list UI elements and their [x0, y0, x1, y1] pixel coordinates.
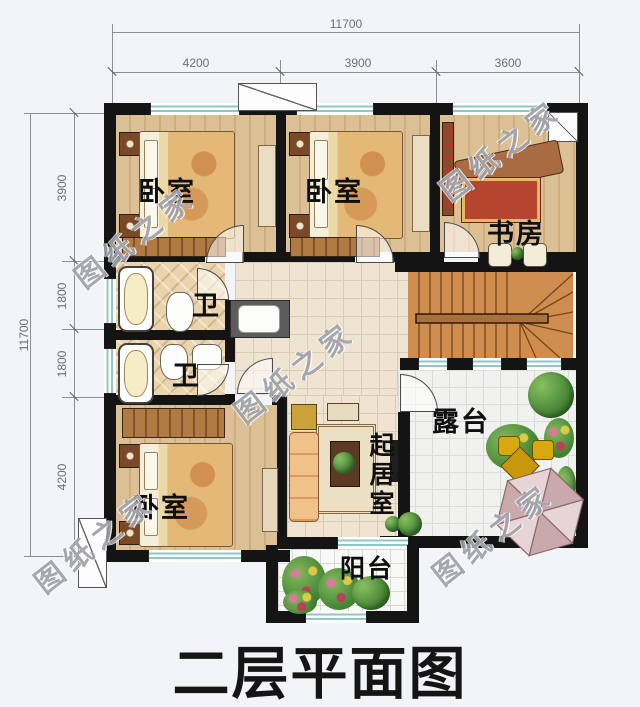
dim-extension	[24, 113, 106, 114]
plant-icon	[398, 512, 422, 536]
window-balcony-bottom	[305, 611, 367, 623]
bathtub	[118, 343, 154, 404]
window-bath1	[104, 278, 116, 324]
dresser	[258, 145, 276, 227]
nightstand	[289, 214, 311, 238]
dim-left-seg1: 3900	[55, 158, 69, 218]
bathtub	[118, 266, 154, 332]
window-stairs-3	[526, 358, 562, 370]
wall-stairs-terrace	[500, 358, 526, 370]
nightstand	[119, 132, 141, 156]
wall-stairs-terrace	[400, 358, 418, 370]
page-title: 二层平面图	[0, 628, 640, 707]
bath2-label: 卫	[172, 354, 201, 393]
wall-stairs-top	[395, 262, 576, 272]
study-label: 书房	[487, 212, 545, 251]
dim-left-seg4: 4200	[55, 447, 69, 507]
window-living-balcony	[337, 537, 409, 549]
toilet	[166, 292, 194, 332]
living-label: 起居室	[362, 432, 398, 519]
window-stairs-2	[472, 358, 502, 370]
wall-art	[327, 403, 359, 421]
dim-top-seg-line	[112, 72, 580, 73]
wall-stairs-terrace	[560, 358, 576, 370]
nightstand	[289, 132, 311, 156]
dresser	[412, 135, 430, 232]
dim-top-seg3: 3600	[436, 56, 580, 70]
floor-plan-page: 11700 4200 3900 3600 11700 3900 1800 180…	[0, 0, 640, 707]
dim-left-total: 11700	[17, 305, 31, 365]
plant-icon	[528, 372, 574, 418]
bedroom2-label: 卧室	[305, 170, 363, 209]
cabinet	[291, 404, 317, 430]
window-stairs-1	[418, 358, 448, 370]
bath1-label: 卫	[192, 284, 221, 323]
wardrobe	[122, 408, 225, 438]
wall-bed1-bed2	[276, 115, 286, 262]
nightstand	[119, 444, 141, 468]
wall-corridor-top	[392, 252, 444, 262]
dim-top-total: 11700	[112, 17, 580, 31]
terrace-chair	[532, 440, 554, 460]
pillow	[144, 452, 158, 490]
dim-extension	[62, 329, 106, 330]
plant-icon	[333, 452, 355, 474]
window-bath2	[104, 348, 116, 394]
dim-extension	[62, 397, 106, 398]
sofa	[289, 432, 319, 522]
dim-left-seg2: 1800	[55, 266, 69, 326]
terrace-label: 露台	[432, 400, 490, 439]
plant-stand	[262, 468, 278, 532]
dim-top-seg2: 3900	[280, 56, 436, 70]
dim-left-seg3: 1800	[55, 334, 69, 394]
dim-left-seg-line	[74, 113, 75, 556]
dim-top-total-line	[112, 32, 580, 33]
dim-top-seg1: 4200	[112, 56, 280, 70]
wall-stairs-terrace	[446, 358, 472, 370]
wall-bed3-living	[277, 395, 287, 549]
window-bedroom1	[150, 103, 240, 115]
flower-bush-icon	[283, 590, 317, 614]
bay-window-top	[238, 83, 317, 111]
vanity-basin	[238, 305, 280, 333]
window-bedroom3	[148, 550, 242, 562]
wall-living-balcony	[277, 537, 337, 549]
balcony-label: 阳台	[340, 549, 394, 585]
wall-balcony-right	[407, 545, 419, 623]
staircase	[408, 272, 573, 358]
